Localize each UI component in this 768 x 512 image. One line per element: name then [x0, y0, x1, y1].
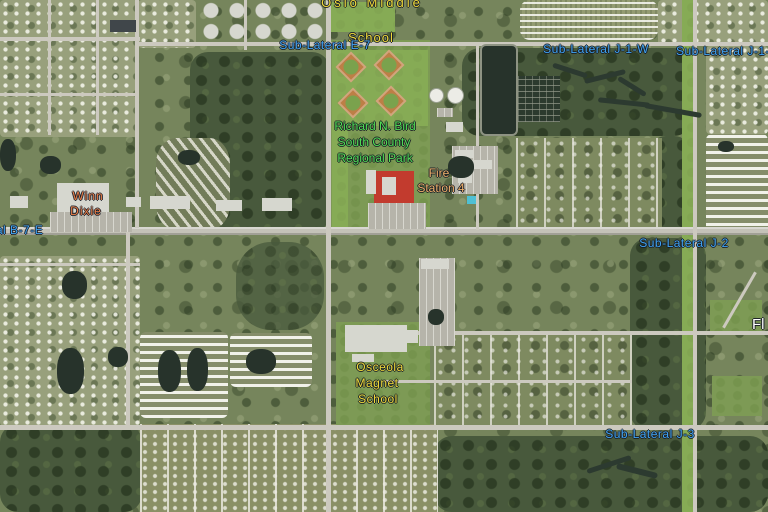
- building: [382, 177, 396, 195]
- pond: [448, 156, 474, 178]
- dark-roof-building: [110, 20, 136, 32]
- oslo-middle-school-buildings: [198, 0, 328, 42]
- pond: [40, 156, 61, 174]
- parking-lot: [368, 203, 426, 229]
- building: [150, 196, 190, 209]
- mobile-home-park: [520, 0, 658, 40]
- road: [0, 93, 138, 96]
- building: [366, 170, 376, 194]
- pond: [718, 141, 734, 152]
- main-road: [326, 0, 331, 512]
- townhouse-complex: [140, 332, 228, 418]
- aerial-map[interactable]: Oslo MiddleSchoolSub-Lateral E-7Sub-Late…: [0, 0, 768, 512]
- road: [138, 42, 768, 46]
- school-field: [331, 2, 395, 32]
- pond: [428, 309, 444, 325]
- swimming-pool: [467, 196, 476, 204]
- building: [446, 122, 463, 132]
- pond: [178, 150, 200, 165]
- pond: [0, 139, 16, 171]
- pond: [187, 348, 208, 391]
- residential-area: [138, 0, 196, 48]
- treatment-plant: [518, 76, 560, 122]
- water-tank: [430, 89, 443, 102]
- water-tank: [448, 88, 463, 103]
- building: [10, 196, 28, 208]
- road: [96, 0, 99, 135]
- forest-area: [0, 424, 142, 512]
- road: [135, 0, 139, 228]
- canal-road: [693, 0, 697, 512]
- pond: [246, 349, 276, 374]
- pasture-clearing: [712, 376, 762, 416]
- pond: [62, 271, 87, 299]
- pond: [158, 350, 181, 392]
- building: [262, 198, 292, 211]
- building: [421, 259, 449, 269]
- utility-building: [437, 108, 453, 117]
- condo-rows: [706, 134, 768, 234]
- road: [0, 263, 140, 266]
- road: [0, 425, 768, 430]
- road: [0, 37, 140, 41]
- forest-area: [236, 242, 324, 330]
- road: [48, 0, 51, 135]
- parking-lot: [419, 258, 455, 346]
- building: [216, 200, 242, 211]
- residential-grid: [140, 424, 438, 512]
- residential-area: [706, 46, 768, 134]
- road: [384, 380, 632, 383]
- shopping-plaza-roof: [57, 183, 109, 213]
- building: [126, 197, 141, 207]
- residential-grid: [516, 138, 662, 230]
- osceola-school-building: [352, 354, 374, 362]
- forest-area: [434, 436, 768, 512]
- road: [126, 230, 130, 426]
- plaza-parking: [50, 212, 132, 232]
- reservoir: [482, 46, 516, 134]
- fire-station-4-label-line-1: Fire: [429, 166, 450, 180]
- pond: [57, 348, 84, 394]
- residential-area: [658, 0, 768, 46]
- park-road: [476, 42, 479, 230]
- building: [472, 160, 492, 169]
- osceola-school-building: [398, 330, 418, 343]
- pond: [108, 347, 128, 367]
